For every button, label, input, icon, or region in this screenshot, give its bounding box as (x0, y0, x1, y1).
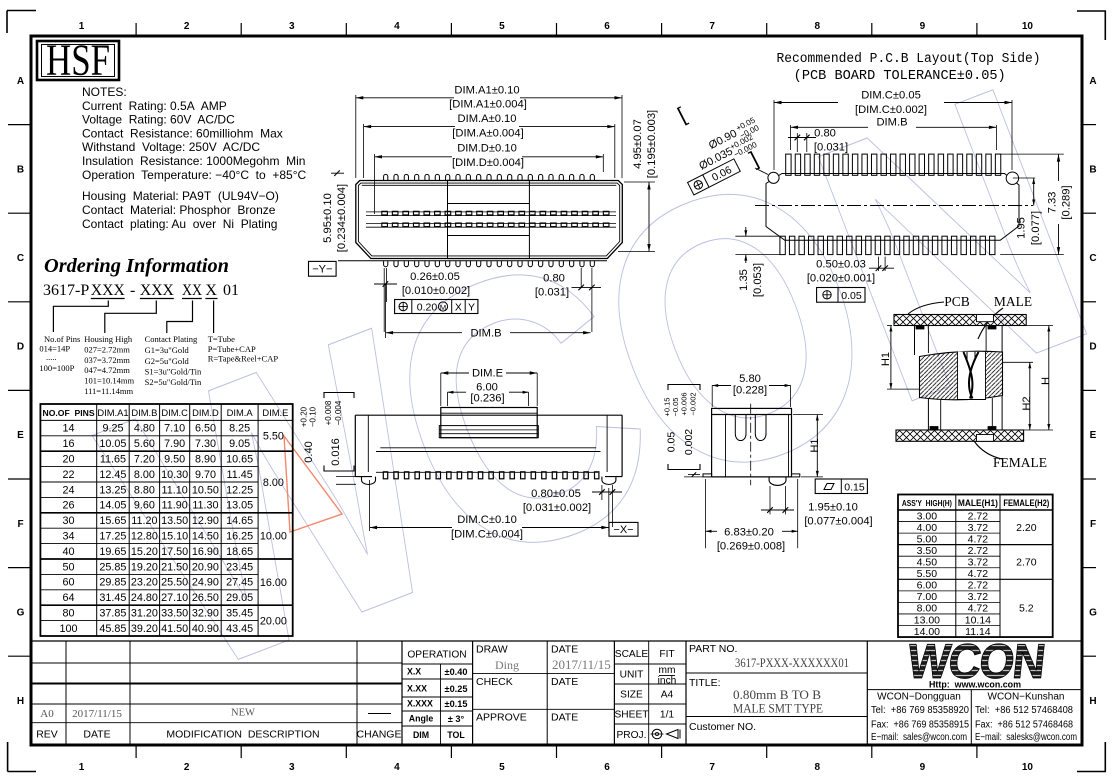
svg-text:7: 7 (709, 762, 715, 773)
svg-text:DIM: DIM (413, 730, 429, 740)
svg-text:TITLE:: TITLE: (689, 677, 721, 689)
svg-text:DATE: DATE (83, 729, 110, 741)
svg-text:Tel: +86 512 57468408: Tel: +86 512 57468408 (975, 705, 1074, 716)
svg-text:X: X (455, 302, 462, 314)
svg-text:5.50: 5.50 (263, 431, 284, 443)
svg-text:5: 5 (499, 762, 505, 773)
svg-text:22: 22 (63, 469, 75, 481)
svg-text:5.50: 5.50 (917, 568, 938, 580)
svg-text:Customer NO.: Customer NO. (689, 721, 756, 733)
svg-text:0.15: 0.15 (844, 481, 865, 493)
svg-text:A0: A0 (40, 708, 54, 720)
svg-text:D: D (17, 342, 24, 353)
svg-text:MALE SMT TYPE: MALE SMT TYPE (733, 702, 823, 716)
svg-text:0.50±0.03: 0.50±0.03 (816, 259, 866, 271)
svg-text:−0.004: −0.004 (334, 400, 343, 425)
svg-text:0.80: 0.80 (543, 273, 565, 285)
svg-text:Ordering Information: Ordering Information (44, 255, 229, 277)
svg-text:DIM.B: DIM.B (131, 407, 157, 418)
svg-text:UNIT: UNIT (620, 670, 644, 681)
svg-text:18.65: 18.65 (226, 546, 253, 558)
svg-text:[DIM.C±0.004]: [DIM.C±0.004] (451, 529, 523, 541)
svg-text:23.45: 23.45 (226, 561, 253, 573)
svg-text:T=Tube: T=Tube (208, 334, 235, 344)
svg-text:2: 2 (184, 762, 190, 773)
svg-text:3.00: 3.00 (917, 510, 938, 522)
svg-text:[0.195±0.003]: [0.195±0.003] (646, 110, 658, 178)
svg-text:100: 100 (60, 623, 78, 635)
svg-text:DIM.B: DIM.B (470, 328, 501, 340)
svg-text:31.20: 31.20 (131, 608, 158, 620)
svg-text:29.05: 29.05 (226, 592, 253, 604)
svg-text:A: A (17, 76, 24, 87)
svg-text:33.50: 33.50 (161, 608, 188, 620)
svg-text:20: 20 (63, 454, 75, 466)
svg-text:39.20: 39.20 (131, 623, 158, 635)
svg-text:FIT: FIT (659, 649, 674, 660)
svg-text:SCALE: SCALE (615, 649, 649, 660)
svg-text:[DIM.A1±0.004]: [DIM.A1±0.004] (449, 99, 527, 111)
svg-text:Recommended P.C.B Layout(Top S: Recommended P.C.B Layout(Top Side) (777, 52, 1041, 67)
svg-text:[0.228]: [0.228] (733, 385, 767, 397)
svg-text:S2=5u"Gold/Tin: S2=5u"Gold/Tin (145, 377, 202, 387)
svg-text:24: 24 (63, 484, 75, 496)
svg-text:9: 9 (920, 21, 926, 32)
svg-text:[0.031]: [0.031] (814, 142, 848, 154)
svg-text:[0.234±0.004]: [0.234±0.004] (336, 184, 348, 252)
svg-text:OPERATION: OPERATION (407, 650, 466, 661)
svg-text:7: 7 (709, 21, 715, 32)
svg-text:6.50: 6.50 (195, 423, 216, 435)
svg-text:7.30: 7.30 (195, 438, 216, 450)
svg-text:[0.020±0.001]: [0.020±0.001] (807, 273, 875, 285)
svg-text:−Y−: −Y− (312, 264, 332, 276)
svg-text:101=10.14mm: 101=10.14mm (84, 376, 134, 386)
svg-text:14.05: 14.05 (99, 500, 126, 512)
svg-text:4.72: 4.72 (968, 603, 989, 615)
svg-text:2.72: 2.72 (968, 510, 989, 522)
svg-text:29.85: 29.85 (99, 577, 126, 589)
svg-text:[DIM.C±0.002]: [DIM.C±0.002] (855, 104, 927, 116)
svg-text:DIM.E: DIM.E (472, 368, 503, 380)
svg-text:CHANGE: CHANGE (357, 729, 402, 741)
svg-text:.....: ..... (46, 352, 57, 362)
svg-text:H2: H2 (1021, 396, 1033, 410)
svg-text:23.20: 23.20 (131, 577, 158, 589)
svg-text:R=Tape&Reel+CAP: R=Tape&Reel+CAP (208, 354, 279, 364)
svg-text:5.00: 5.00 (917, 533, 938, 545)
svg-text:Http: www.wcon.com: Http: www.wcon.com (929, 680, 1021, 690)
svg-text:Y: Y (468, 302, 475, 314)
svg-text:Fax: +86 512 57468468: Fax: +86 512 57468468 (975, 720, 1074, 731)
svg-text:13.00: 13.00 (914, 614, 940, 626)
svg-text:13.50: 13.50 (161, 515, 188, 527)
svg-text:6: 6 (604, 21, 610, 32)
svg-text:TOL: TOL (447, 730, 465, 740)
svg-text:DIM.E: DIM.E (262, 407, 288, 418)
svg-text:17.50: 17.50 (161, 546, 188, 558)
svg-text:20.90: 20.90 (192, 561, 219, 573)
svg-text:40: 40 (63, 546, 75, 558)
svg-text:B: B (1089, 164, 1096, 175)
svg-text:25.50: 25.50 (161, 577, 188, 589)
svg-text:0.26±0.05: 0.26±0.05 (410, 271, 460, 283)
svg-text:[0.010±0.002]: [0.010±0.002] (402, 285, 470, 297)
svg-text:0.05: 0.05 (841, 290, 862, 302)
svg-text:A: A (1089, 76, 1096, 87)
svg-text:PART NO.: PART NO. (689, 643, 737, 655)
svg-text:Contact Resistance: 60millioh: Contact Resistance: 60milliohm Max (82, 126, 283, 140)
svg-text:E: E (17, 430, 24, 441)
svg-text:[DIM.D±0.004]: [DIM.D±0.004] (452, 157, 524, 169)
svg-text:HSF: HSF (46, 36, 110, 85)
svg-text:DATE: DATE (551, 644, 578, 656)
svg-text:027=2.72mm: 027=2.72mm (84, 344, 130, 354)
svg-text:8.80: 8.80 (134, 484, 155, 496)
svg-text:1.35: 1.35 (738, 269, 750, 291)
svg-text:CHECK: CHECK (476, 676, 513, 688)
svg-text:20.00: 20.00 (260, 615, 287, 627)
svg-text:5.95±0.10: 5.95±0.10 (322, 193, 334, 243)
svg-text:DIM.D: DIM.D (192, 407, 219, 418)
svg-text:64: 64 (63, 592, 75, 604)
svg-text:B: B (17, 164, 24, 175)
svg-text:11.45: 11.45 (227, 469, 253, 481)
svg-text:15.65: 15.65 (99, 515, 126, 527)
svg-text:14.65: 14.65 (226, 515, 253, 527)
svg-text:2017/11/15: 2017/11/15 (552, 657, 611, 672)
svg-text:H1: H1 (880, 352, 892, 366)
svg-text:[0.236]: [0.236] (470, 393, 504, 405)
svg-text:80: 80 (63, 608, 75, 620)
svg-text:[0.077±0.004]: [0.077±0.004] (804, 516, 872, 528)
svg-text:DIM.A1: DIM.A1 (97, 407, 128, 418)
svg-text:A4: A4 (661, 690, 674, 701)
svg-text:DATE: DATE (551, 712, 578, 724)
svg-text:X.X: X.X (407, 667, 421, 677)
svg-text:7.10: 7.10 (164, 423, 185, 435)
svg-text:10.30: 10.30 (161, 469, 188, 481)
svg-text:DRAW: DRAW (476, 644, 508, 656)
svg-text:3.72: 3.72 (968, 522, 989, 534)
svg-text:DIM.C±0.05: DIM.C±0.05 (861, 90, 921, 102)
svg-text:12.80: 12.80 (131, 531, 158, 543)
svg-text:FEMALE(H2): FEMALE(H2) (1003, 498, 1049, 508)
svg-text:1: 1 (79, 762, 85, 773)
svg-text:11.65: 11.65 (100, 454, 126, 466)
svg-text:±0.15: ±0.15 (445, 699, 468, 709)
svg-text:0.002: 0.002 (683, 429, 695, 455)
svg-text:APPROVE: APPROVE (476, 712, 527, 724)
svg-text:DIM.A±0.10: DIM.A±0.10 (458, 113, 517, 125)
svg-text:0.80±0.05: 0.80±0.05 (531, 488, 581, 500)
svg-text:MODIFICATION DESCRIPTION: MODIFICATION DESCRIPTION (166, 729, 319, 741)
svg-text:3.72: 3.72 (968, 557, 989, 569)
svg-text:± 3°: ± 3° (448, 714, 465, 724)
svg-text:12.25: 12.25 (226, 484, 253, 496)
svg-text:047=4.72mm: 047=4.72mm (84, 365, 130, 375)
svg-text:3: 3 (289, 21, 295, 32)
svg-text:Insulation Resistance: 1000Me: Insulation Resistance: 1000Megohm Min (82, 154, 305, 168)
svg-text:10: 10 (1022, 762, 1034, 773)
svg-text:4: 4 (394, 762, 400, 773)
svg-text:-: - (130, 282, 135, 299)
svg-text:E−mail: sales@wcon.com: E−mail: sales@wcon.com (871, 732, 967, 743)
svg-text:D: D (1089, 342, 1096, 353)
svg-text:16.90: 16.90 (192, 546, 219, 558)
svg-text:2017/11/15: 2017/11/15 (72, 708, 122, 720)
svg-text:01: 01 (223, 282, 239, 299)
svg-text:REV: REV (36, 729, 58, 741)
svg-text:Operation Temperature: −40°C: Operation Temperature: −40°C to +85°C (82, 168, 307, 182)
svg-text:40.90: 40.90 (192, 623, 219, 635)
svg-text:2: 2 (184, 21, 190, 32)
svg-text:8.90: 8.90 (195, 454, 216, 466)
svg-text:11.20: 11.20 (131, 515, 157, 527)
svg-text:037=3.72mm: 037=3.72mm (84, 355, 130, 365)
svg-text:4.50: 4.50 (917, 557, 938, 569)
svg-text:5.80: 5.80 (739, 373, 761, 385)
svg-text:8.00: 8.00 (917, 603, 938, 615)
svg-text:31.45: 31.45 (99, 592, 126, 604)
svg-text:P=Tube+CAP: P=Tube+CAP (208, 344, 256, 354)
svg-text:Housing Material: PA9T (UL94: Housing Material: PA9T (UL94V−O) (82, 189, 279, 203)
svg-text:−0.002: −0.002 (689, 392, 698, 415)
svg-text:27.10: 27.10 (161, 592, 188, 604)
svg-text:11.30: 11.30 (192, 500, 218, 512)
svg-text:+0.008: +0.008 (324, 400, 333, 425)
svg-text:E−mail: salesks@wcon.com: E−mail: salesks@wcon.com (975, 732, 1077, 743)
svg-text:2.70: 2.70 (1016, 556, 1037, 568)
svg-text:6.00: 6.00 (917, 580, 938, 592)
svg-text:No.of Pins: No.of Pins (44, 334, 80, 344)
svg-text:15.10: 15.10 (161, 531, 188, 543)
svg-text:+0.20: +0.20 (300, 406, 309, 427)
svg-text:9.25: 9.25 (102, 423, 123, 435)
svg-text:1/1: 1/1 (660, 710, 674, 721)
svg-text:ASS'Y HIGH(H): ASS'Y HIGH(H) (902, 498, 952, 508)
svg-text:NOTES:: NOTES: (82, 85, 127, 99)
svg-text:[0.031]: [0.031] (535, 287, 569, 299)
svg-text:Housing High: Housing High (84, 334, 133, 344)
svg-text:Angle: Angle (409, 714, 434, 724)
svg-text:7.90: 7.90 (164, 438, 185, 450)
svg-text:9.50: 9.50 (164, 454, 185, 466)
svg-text:4.95±0.07: 4.95±0.07 (632, 119, 644, 169)
svg-text:10: 10 (1022, 21, 1034, 32)
svg-text:45.85: 45.85 (99, 623, 126, 635)
svg-text:[0.289]: [0.289] (1061, 185, 1073, 219)
svg-text:9: 9 (920, 762, 926, 773)
svg-text:H: H (17, 696, 24, 707)
svg-text:11.90: 11.90 (162, 500, 188, 512)
svg-text:9.05: 9.05 (229, 438, 250, 450)
svg-text:X: X (205, 282, 217, 299)
svg-text:2.72: 2.72 (968, 580, 989, 592)
svg-text:14.50: 14.50 (192, 531, 219, 543)
svg-text:3.50: 3.50 (917, 545, 938, 557)
svg-text:14: 14 (63, 423, 75, 435)
svg-text:3617-PXXX-XXXXXX01: 3617-PXXX-XXXXXX01 (735, 655, 849, 670)
svg-text:Current Rating: 0.5A AMP: Current Rating: 0.5A AMP (82, 99, 227, 113)
svg-text:F: F (1090, 519, 1096, 530)
svg-text:±0.40: ±0.40 (445, 667, 468, 677)
svg-text:PROJ.: PROJ. (616, 730, 646, 741)
svg-text:Voltage Rating: 60V AC/DC: Voltage Rating: 60V AC/DC (82, 113, 235, 127)
svg-text:26.50: 26.50 (192, 592, 219, 604)
svg-text:43.45: 43.45 (226, 623, 253, 635)
svg-text:WCON−Kunshan: WCON−Kunshan (988, 692, 1065, 703)
svg-text:+0.006: +0.006 (680, 392, 689, 415)
svg-text:2.72: 2.72 (968, 545, 989, 557)
svg-text:NEW: NEW (231, 708, 255, 719)
svg-text:Tel: +86 769 85358920: Tel: +86 769 85358920 (871, 705, 970, 716)
svg-text:C: C (1089, 253, 1096, 264)
svg-text:C: C (17, 253, 24, 264)
svg-text:[0.077]: [0.077] (1030, 211, 1042, 245)
svg-text:8: 8 (814, 21, 820, 32)
svg-text:Fax: +86 769 85358915: Fax: +86 769 85358915 (871, 720, 970, 731)
svg-text:NO.OF PINS: NO.OF PINS (43, 408, 95, 418)
svg-text:Contact plating: Au over Ni: Contact plating: Au over Ni Plating (82, 217, 277, 231)
svg-text:9.60: 9.60 (134, 500, 155, 512)
svg-text:30: 30 (63, 515, 75, 527)
svg-text:G: G (1089, 607, 1097, 618)
svg-text:DIM.C±0.10: DIM.C±0.10 (457, 514, 517, 526)
svg-text:37.85: 37.85 (99, 608, 126, 620)
svg-text:8.00: 8.00 (263, 477, 284, 489)
svg-text:13.05: 13.05 (226, 500, 253, 512)
svg-text:inch: inch (658, 676, 677, 687)
svg-text:24.90: 24.90 (192, 577, 219, 589)
svg-text:[0.031±0.002]: [0.031±0.002] (523, 502, 591, 514)
svg-text:G: G (17, 607, 25, 618)
svg-text:15.20: 15.20 (131, 546, 158, 558)
svg-text:E: E (1090, 430, 1097, 441)
svg-text:0.80: 0.80 (814, 128, 836, 140)
svg-text:7.20: 7.20 (134, 454, 155, 466)
svg-text:0.05: 0.05 (666, 432, 678, 453)
svg-text:12.90: 12.90 (192, 515, 219, 527)
svg-text:DIM.C: DIM.C (161, 407, 188, 418)
svg-text:1: 1 (79, 21, 85, 32)
svg-text:0.016: 0.016 (330, 438, 342, 466)
svg-text:S1=3u"Gold/Tin: S1=3u"Gold/Tin (145, 367, 202, 377)
svg-text:3: 3 (289, 762, 295, 773)
svg-text:DIM.D±0.10: DIM.D±0.10 (457, 143, 517, 155)
svg-text:[0.269±0.008]: [0.269±0.008] (717, 541, 785, 553)
svg-text:−X−: −X− (613, 524, 633, 536)
svg-text:F: F (17, 519, 23, 530)
svg-text:1.95±0.10: 1.95±0.10 (808, 502, 858, 514)
svg-text:M: M (440, 303, 446, 312)
svg-text:9.70: 9.70 (195, 469, 216, 481)
svg-text:6.83±0.20: 6.83±0.20 (724, 527, 774, 539)
svg-text:10.05: 10.05 (99, 438, 126, 450)
svg-text:±0.25: ±0.25 (445, 684, 468, 694)
svg-text:11.10: 11.10 (162, 484, 188, 496)
svg-text:4.72: 4.72 (968, 568, 989, 580)
svg-text:5: 5 (499, 21, 505, 32)
svg-text:8.25: 8.25 (229, 423, 250, 435)
svg-text:H1: H1 (809, 438, 821, 452)
svg-text:6: 6 (604, 762, 610, 773)
svg-text:17.25: 17.25 (99, 531, 126, 543)
svg-text:3.72: 3.72 (968, 591, 989, 603)
svg-text:19.20: 19.20 (131, 561, 158, 573)
svg-text:SHEET: SHEET (615, 710, 649, 721)
svg-text:[DIM.A±0.004]: [DIM.A±0.004] (452, 128, 523, 140)
svg-text:mm: mm (659, 665, 676, 676)
svg-text:H: H (1040, 377, 1052, 385)
svg-text:−0.10: −0.10 (309, 406, 318, 427)
svg-text:1.95: 1.95 (1016, 217, 1028, 239)
svg-text:0.80mm B TO B: 0.80mm B TO B (733, 688, 821, 702)
svg-text:35.45: 35.45 (226, 608, 253, 620)
svg-text:24.80: 24.80 (131, 592, 158, 604)
svg-text:XXX: XXX (91, 282, 125, 299)
svg-text:41.50: 41.50 (161, 623, 188, 635)
svg-text:G2=5u"Gold: G2=5u"Gold (145, 356, 190, 366)
svg-text:4.72: 4.72 (968, 533, 989, 545)
svg-text:25.85: 25.85 (99, 561, 126, 573)
svg-text:XXX: XXX (140, 282, 174, 299)
svg-text:Contact Material: Phosphor B: Contact Material: Phosphor Bronze (82, 203, 276, 217)
svg-text:8: 8 (814, 762, 820, 773)
svg-text:16: 16 (63, 438, 75, 450)
svg-text:WCON−Dongguan: WCON−Dongguan (877, 692, 961, 703)
svg-text:60: 60 (63, 577, 75, 589)
svg-text:32.90: 32.90 (192, 608, 219, 620)
svg-text:10.65: 10.65 (226, 454, 253, 466)
svg-text:X.XXX: X.XXX (407, 699, 433, 709)
svg-text:[0.053]: [0.053] (752, 263, 764, 297)
svg-text:10.50: 10.50 (192, 484, 219, 496)
svg-text:8.00: 8.00 (134, 469, 155, 481)
svg-text:12.45: 12.45 (99, 469, 126, 481)
svg-text:5.60: 5.60 (134, 438, 155, 450)
svg-text:X.XX: X.XX (407, 684, 427, 694)
svg-text:(PCB BOARD TOLERANCE±0.05): (PCB BOARD TOLERANCE±0.05) (794, 69, 1006, 84)
svg-text:26: 26 (63, 500, 75, 512)
svg-text:34: 34 (63, 531, 75, 543)
svg-text:7.33: 7.33 (1047, 192, 1059, 214)
svg-text:4.00: 4.00 (917, 522, 938, 534)
svg-text:4: 4 (394, 21, 400, 32)
svg-text:16.00: 16.00 (260, 577, 287, 589)
svg-text:2.20: 2.20 (1016, 522, 1037, 534)
svg-text:DIM.A: DIM.A (227, 407, 254, 418)
svg-text:G1=3u"Gold: G1=3u"Gold (145, 345, 190, 355)
svg-text:100=100P: 100=100P (39, 363, 74, 373)
svg-text:DIM.A1±0.10: DIM.A1±0.10 (454, 85, 519, 97)
svg-text:XX: XX (182, 282, 202, 299)
svg-text:19.65: 19.65 (99, 546, 126, 558)
svg-text:0.40: 0.40 (303, 441, 315, 462)
svg-text:111=11.14mm: 111=11.14mm (84, 386, 133, 396)
svg-text:FEMALE: FEMALE (993, 455, 1047, 470)
svg-text:DATE: DATE (551, 676, 578, 688)
svg-text:3617-P: 3617-P (43, 282, 89, 299)
svg-text:27.45: 27.45 (226, 577, 253, 589)
svg-text:Withstand Voltage: 250V AC/D: Withstand Voltage: 250V AC/DC (82, 140, 260, 154)
svg-text:DIM.B: DIM.B (876, 117, 907, 129)
svg-text:SIZE: SIZE (620, 690, 643, 701)
svg-text:10.00: 10.00 (260, 531, 287, 543)
svg-text:PCB: PCB (944, 294, 970, 309)
svg-text:0.20: 0.20 (417, 302, 438, 314)
svg-text:4.80: 4.80 (134, 423, 155, 435)
